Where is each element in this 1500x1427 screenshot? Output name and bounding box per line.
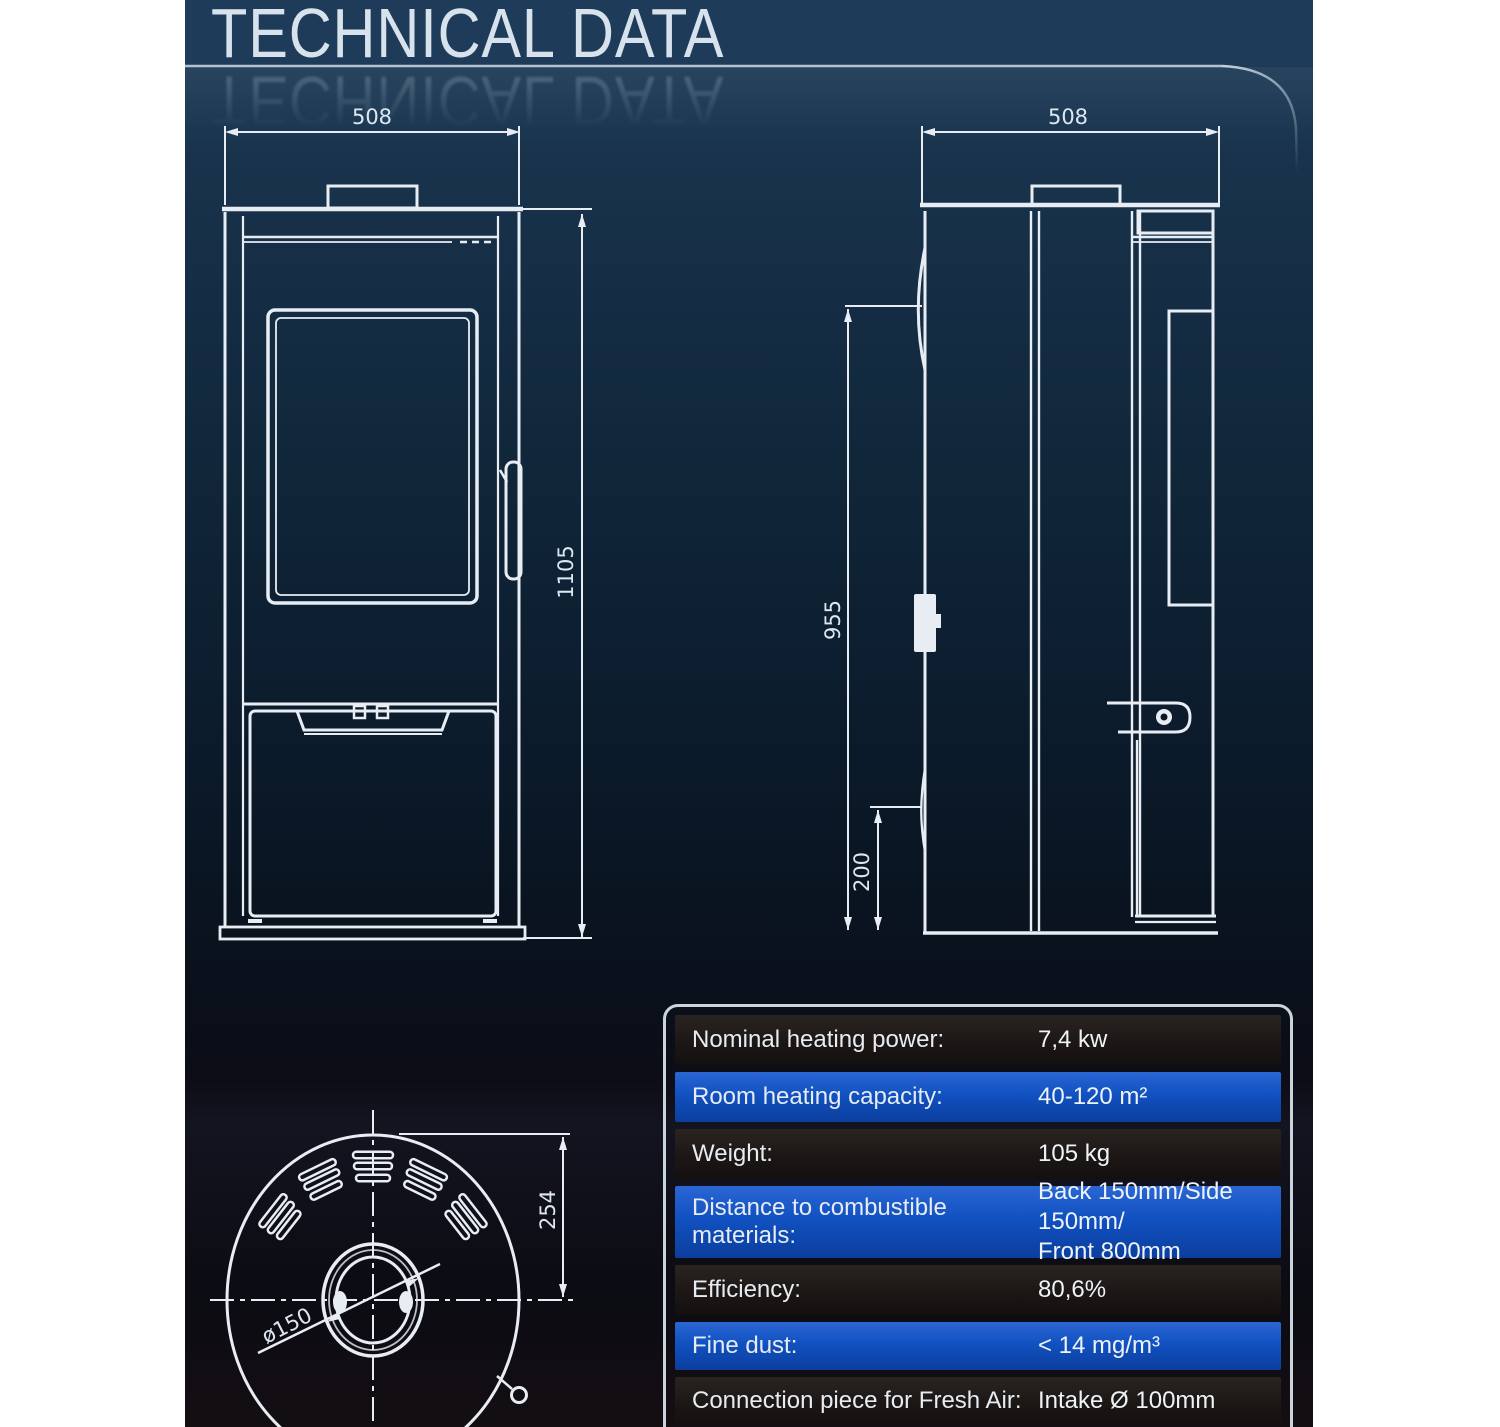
spec-value: 40-120 m²: [1038, 1082, 1281, 1112]
table-row: Connection piece for Fresh Air: Intake Ø…: [675, 1377, 1281, 1425]
spec-value: < 14 mg/m³: [1038, 1331, 1281, 1361]
spec-label: Distance to combustible materials:: [675, 1194, 1038, 1250]
spec-label: Connection piece for Fresh Air:: [675, 1387, 1038, 1415]
table-row: Room heating capacity: 40-120 m²: [675, 1072, 1281, 1122]
sheet-content: TECHNICAL DATA TECHNICAL DATA: [185, 0, 1313, 1427]
front-width-dimension: 508: [352, 105, 392, 129]
spec-value: Back 150mm/Side 150mm/ Front 800mm: [1038, 1177, 1281, 1267]
table-row: Distance to combustible materials: Back …: [675, 1186, 1281, 1258]
spec-value: 80,6%: [1038, 1275, 1281, 1305]
side-view-drawing: [844, 126, 1220, 933]
table-row: Efficiency: 80,6%: [675, 1265, 1281, 1315]
side-clearance-dimension: 200: [850, 852, 874, 892]
spec-value: 7,4 kw: [1038, 1025, 1281, 1055]
spec-label: Room heating capacity:: [675, 1083, 1038, 1111]
spec-table: Nominal heating power: 7,4 kw Room heati…: [663, 1004, 1293, 1427]
side-height-dimension: 955: [821, 600, 845, 640]
front-height-dimension: 1105: [554, 545, 578, 598]
table-row: Weight: 105 kg: [675, 1129, 1281, 1179]
spec-label: Nominal heating power:: [675, 1026, 1038, 1054]
table-row: Nominal heating power: 7,4 kw: [675, 1015, 1281, 1065]
spec-value: Intake Ø 100mm: [1038, 1386, 1281, 1416]
side-depth-dimension: 508: [1048, 105, 1088, 129]
spec-label: Efficiency:: [675, 1276, 1038, 1304]
table-row: Fine dust: < 14 mg/m³: [675, 1322, 1281, 1370]
top-radius-dimension: 254: [536, 1190, 560, 1230]
spec-label: Weight:: [675, 1140, 1038, 1168]
flue-diameter-dimension: ø150: [258, 1303, 316, 1348]
spec-value: 105 kg: [1038, 1139, 1281, 1169]
front-view-drawing: [220, 126, 592, 939]
technical-data-sheet: TECHNICAL DATA TECHNICAL DATA: [0, 0, 1500, 1427]
top-view-drawing: [210, 1110, 573, 1427]
spec-label: Fine dust:: [675, 1332, 1038, 1360]
